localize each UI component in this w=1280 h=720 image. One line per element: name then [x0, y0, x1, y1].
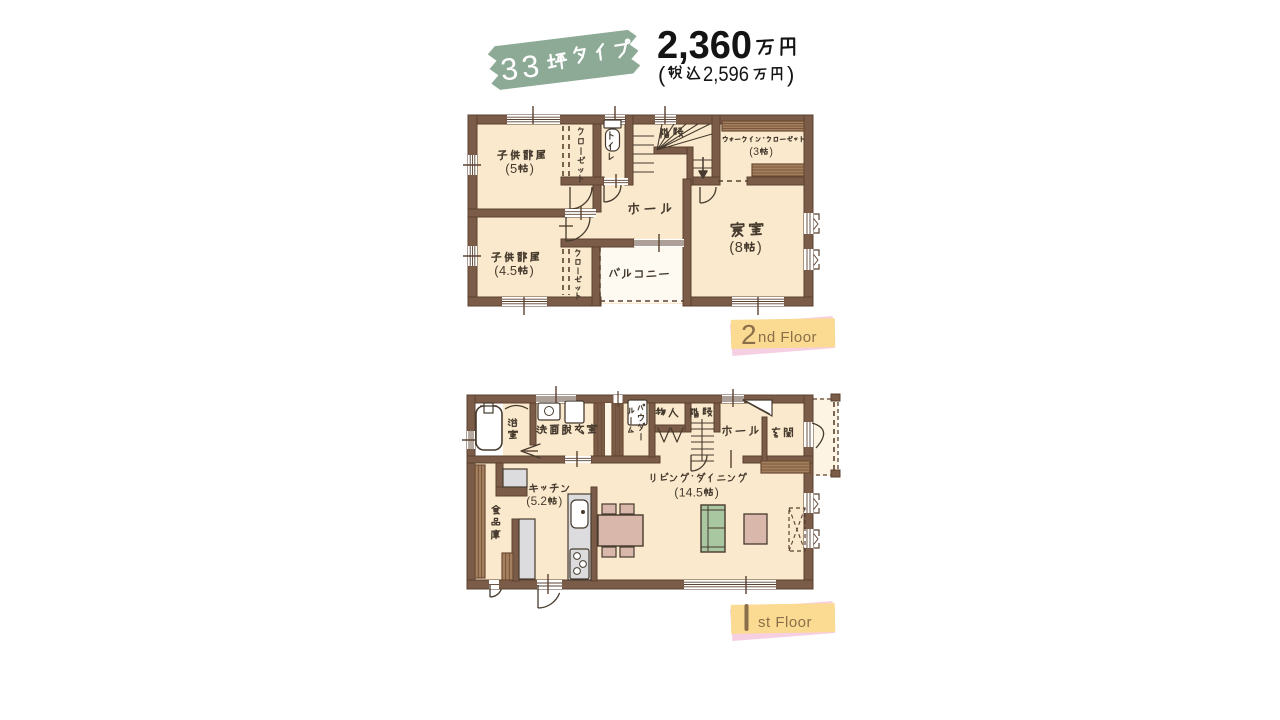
svg-text:2,596: 2,596 — [703, 63, 749, 86]
svg-text:2: 2 — [741, 319, 757, 350]
svg-text:): ) — [529, 263, 533, 278]
svg-text:2: 2 — [540, 494, 547, 508]
svg-text:5: 5 — [510, 161, 517, 176]
svg-text:2,360: 2,360 — [657, 24, 752, 67]
svg-text:3: 3 — [753, 146, 759, 158]
svg-text:8: 8 — [735, 240, 743, 256]
svg-text:): ) — [715, 486, 719, 500]
svg-text:st Floor: st Floor — [758, 614, 812, 631]
svg-text:33: 33 — [499, 48, 545, 88]
svg-text:(: ( — [658, 62, 666, 87]
svg-text:(: ( — [729, 240, 734, 256]
svg-text:): ) — [530, 161, 534, 176]
svg-text:): ) — [769, 146, 773, 158]
svg-text:4: 4 — [499, 263, 506, 278]
svg-text:): ) — [787, 62, 794, 87]
svg-text:5: 5 — [510, 263, 517, 278]
svg-text:5: 5 — [696, 486, 703, 500]
svg-text:): ) — [757, 240, 762, 256]
svg-text:nd Floor: nd Floor — [758, 329, 817, 346]
svg-text:): ) — [558, 494, 562, 508]
